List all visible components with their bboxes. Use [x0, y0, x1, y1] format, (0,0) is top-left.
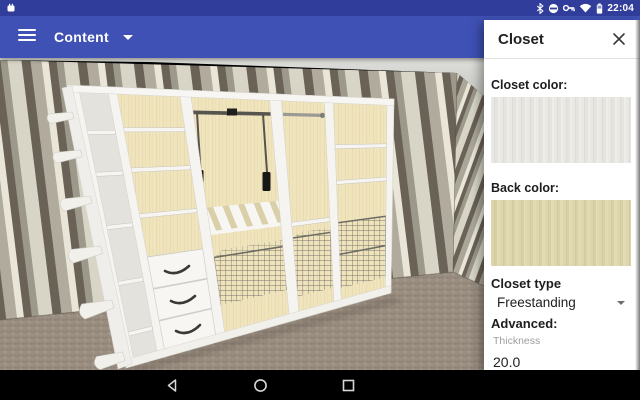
close-icon[interactable]: [612, 32, 626, 46]
back-icon[interactable]: [165, 378, 180, 393]
panel-header: Closet: [484, 20, 640, 59]
key-icon: [563, 3, 575, 13]
closet-3d-scene[interactable]: [0, 58, 484, 370]
bluetooth-icon: [536, 3, 544, 14]
wire-basket: [338, 216, 386, 288]
closet-properties-panel: Closet Closet color: Back color: Closet …: [484, 20, 640, 370]
scene-svg: [0, 58, 484, 370]
content-dropdown[interactable]: Content: [54, 16, 133, 58]
do-not-disturb-icon: [548, 3, 559, 14]
panel-title: Closet: [498, 31, 544, 48]
thickness-label: Thickness: [493, 335, 540, 347]
app-screen: 22:04 Content: [0, 0, 640, 400]
home-icon[interactable]: [253, 378, 268, 393]
closet-type-label: Closet type: [491, 276, 561, 291]
closet-color-label: Closet color:: [491, 78, 567, 92]
dropdown-caret-icon: [123, 35, 133, 40]
wifi-icon: [579, 3, 592, 13]
toolbar-title: Content: [54, 29, 109, 45]
status-bar: 22:04: [0, 0, 640, 16]
app-notification-icon: [6, 3, 16, 13]
hamburger-menu-icon[interactable]: [18, 29, 36, 43]
back-color-swatch[interactable]: [491, 200, 631, 266]
select-caret-icon: [617, 301, 625, 305]
closet-type-value: Freestanding: [497, 295, 576, 310]
closet-color-swatch[interactable]: [491, 97, 631, 163]
thickness-input[interactable]: 20.0: [493, 354, 520, 370]
android-nav-bar: [0, 370, 640, 400]
closet-type-select[interactable]: Freestanding: [497, 292, 627, 314]
back-color-label: Back color:: [491, 181, 559, 195]
status-clock: 22:04: [607, 3, 634, 14]
battery-icon: [596, 3, 603, 14]
advanced-label: Advanced:: [491, 316, 557, 331]
recents-icon[interactable]: [341, 378, 356, 393]
